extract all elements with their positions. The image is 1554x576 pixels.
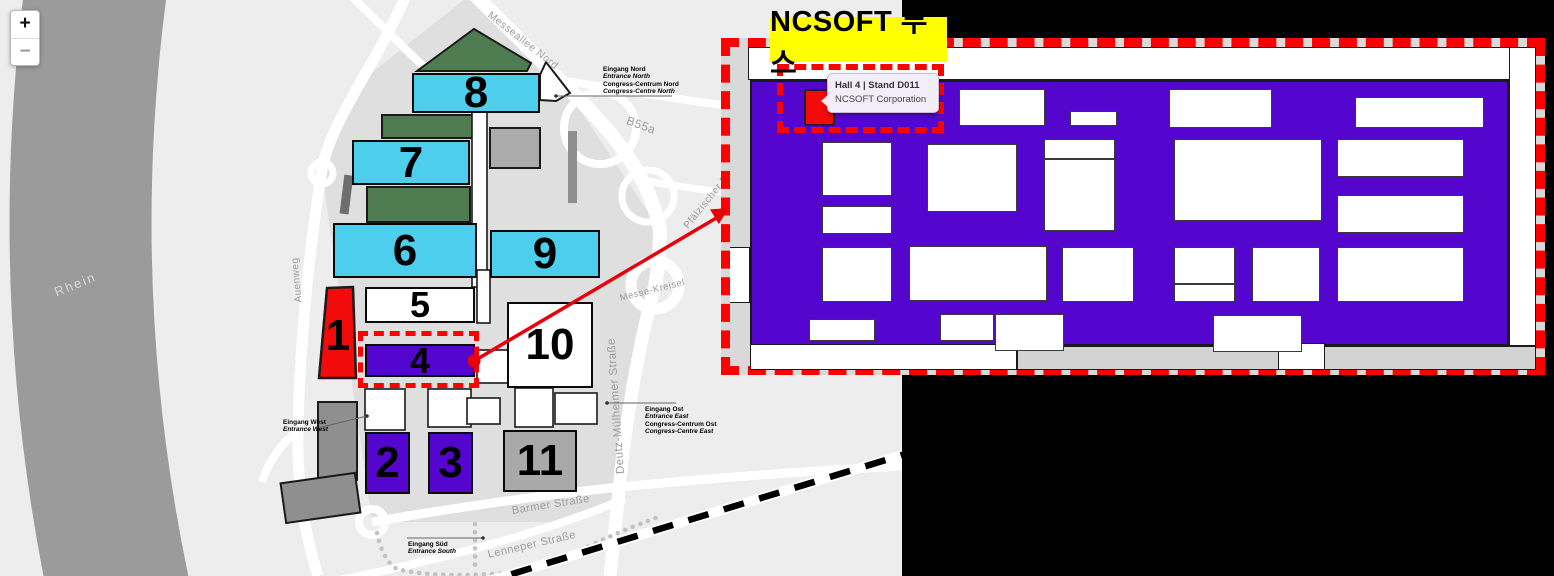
booth[interactable] — [959, 89, 1045, 126]
booth[interactable] — [1070, 111, 1117, 126]
booth[interactable] — [1355, 97, 1484, 128]
zoom-out-button[interactable]: − — [11, 38, 39, 66]
booth[interactable] — [909, 246, 1047, 301]
booth[interactable] — [1213, 315, 1302, 352]
hall-10[interactable]: 10 — [507, 302, 593, 388]
hall-3[interactable]: 3 — [428, 432, 473, 494]
west-gate-building — [318, 402, 357, 480]
hall-1-label: 1 — [322, 314, 354, 358]
gray-bar-building — [568, 131, 577, 203]
hall-number: 5 — [410, 287, 430, 323]
west-gate-building-lower — [281, 473, 361, 523]
booth[interactable] — [927, 144, 1017, 212]
booth[interactable] — [822, 247, 892, 302]
booth[interactable] — [809, 319, 875, 341]
floorplan-left-booth — [730, 247, 750, 303]
booth[interactable] — [822, 206, 892, 234]
ncsoft-callout-label: NCSOFT 부스 — [770, 17, 947, 62]
booth[interactable] — [1174, 247, 1235, 284]
hall-number: 11 — [517, 439, 564, 483]
floorplan-bottom-strip — [750, 344, 1017, 370]
hall-5[interactable]: 5 — [365, 287, 475, 323]
map-zoom-control: + − — [10, 10, 40, 66]
zoom-in-button[interactable]: + — [11, 11, 39, 38]
booth[interactable] — [1337, 195, 1464, 233]
tooltip-pointer-icon — [821, 94, 829, 108]
booth[interactable] — [1174, 139, 1322, 221]
hall-number: 10 — [526, 323, 575, 367]
hall-number: 6 — [393, 229, 417, 273]
hall-number: 7 — [399, 141, 423, 185]
tooltip-subtitle: NCSOFT Corporation — [835, 94, 931, 105]
hall-number: 8 — [464, 71, 488, 115]
booth[interactable] — [1337, 139, 1464, 177]
entrance-label: Eingang OstEntrance EastCongress-Centrum… — [645, 406, 717, 436]
booth[interactable] — [1044, 139, 1115, 159]
booth[interactable] — [995, 314, 1064, 351]
booth[interactable] — [822, 142, 892, 196]
hall-9[interactable]: 9 — [490, 230, 600, 278]
hall-2[interactable]: 2 — [365, 432, 410, 494]
booth[interactable] — [1174, 284, 1235, 302]
booth[interactable] — [1252, 247, 1320, 302]
booth[interactable] — [1044, 159, 1115, 231]
hall-number: 3 — [438, 441, 462, 485]
hall-number: 2 — [375, 441, 399, 485]
booth[interactable] — [1337, 247, 1464, 302]
green-building — [382, 115, 473, 138]
tooltip-title: Hall 4 | Stand D011 — [835, 80, 931, 91]
green-building — [367, 187, 470, 222]
entrance-label: Eingang NordEntrance NorthCongress-Centr… — [603, 66, 679, 96]
booth[interactable] — [1169, 89, 1272, 128]
hall-11[interactable]: 11 — [503, 430, 577, 492]
booth[interactable] — [1062, 247, 1134, 302]
hall-7[interactable]: 7 — [352, 140, 470, 185]
rhein-river — [81, 0, 120, 576]
floorplan-right-strip — [1509, 47, 1536, 346]
entrance-label: Eingang SüdEntrance South — [408, 541, 456, 556]
hall-4-highlight-box — [358, 331, 479, 388]
hall-number: 9 — [533, 232, 557, 276]
hall-8[interactable]: 8 — [412, 73, 540, 113]
booth[interactable] — [940, 314, 994, 341]
gray-building — [490, 128, 540, 168]
hall-6[interactable]: 6 — [333, 223, 477, 278]
screenshot-root: 876954102311 Messeallee NordB55aMesse-Kr… — [0, 0, 1554, 576]
entrance-label: Eingang WestEntrance West — [283, 419, 328, 434]
